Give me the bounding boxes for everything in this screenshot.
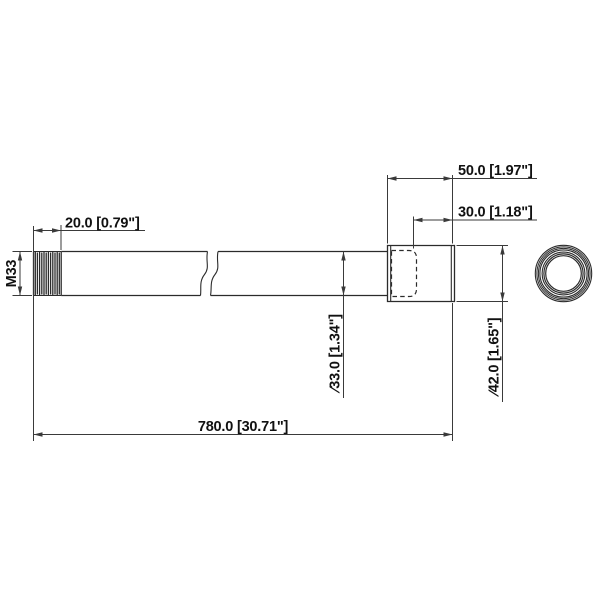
ring-circle-7	[546, 256, 582, 292]
arrowhead-right	[52, 228, 61, 232]
technical-drawing-canvas: M33 20.0 [0.79"] 50.0 [1.97"] 30.0 [1.18…	[0, 0, 600, 600]
dim-thread-spec: M33	[4, 252, 32, 296]
tube-diameter-label: ∕33.0 [1.34"]	[328, 314, 344, 394]
arrowhead-left	[34, 228, 43, 232]
hidden-socket	[392, 251, 417, 297]
thread-length-label: 20.0 [0.79"]	[65, 216, 140, 232]
arrowhead-right	[444, 176, 453, 180]
dim-overall-length: 780.0 [30.71"]	[34, 226, 453, 441]
part-drawing-svg: M33 20.0 [0.79"] 50.0 [1.97"] 30.0 [1.18…	[0, 0, 600, 600]
fitting-outline	[388, 246, 455, 302]
socket-depth-label: 30.0 [1.18"]	[458, 205, 533, 221]
ring-circle-2	[537, 247, 590, 300]
thread-section	[34, 252, 62, 296]
break-symbol	[201, 252, 219, 296]
ring-circle-5	[542, 252, 585, 295]
break-curve-right	[211, 252, 219, 296]
tube-body	[61, 252, 387, 296]
arrowhead-up	[500, 246, 504, 255]
arrowhead-right	[444, 432, 453, 436]
dim-fitting-length: 50.0 [1.97"]	[388, 163, 538, 244]
arrowhead-up	[18, 252, 22, 261]
dim-fitting-diameter: ∕42.0 [1.65"]	[457, 246, 509, 403]
dim-thread-length: 20.0 [0.79"]	[34, 216, 146, 251]
arrowhead-left	[34, 432, 43, 436]
side-view	[34, 246, 455, 302]
arrowhead-down	[500, 293, 504, 302]
break-curve-left	[201, 252, 208, 296]
thread-spec-label: M33	[4, 260, 20, 288]
ring-circle-4	[540, 250, 587, 297]
overall-length-label: 780.0 [30.71"]	[198, 419, 289, 435]
thread-hatch	[35, 252, 59, 295]
arrowhead-down	[341, 287, 345, 296]
arrowhead-left	[388, 176, 397, 180]
arrowhead-up	[341, 252, 345, 261]
fitting-length-label: 50.0 [1.97"]	[458, 163, 533, 179]
end-view-ring	[535, 245, 591, 301]
dim-socket-depth: 30.0 [1.18"]	[414, 205, 538, 249]
end-fitting	[388, 246, 455, 302]
dim-tube-diameter: ∕33.0 [1.34"]	[328, 252, 346, 399]
arrowhead-left	[414, 218, 423, 222]
arrowhead-right	[444, 218, 453, 222]
fitting-diameter-label: ∕42.0 [1.65"]	[487, 317, 503, 397]
ring-circle-6	[544, 254, 583, 293]
